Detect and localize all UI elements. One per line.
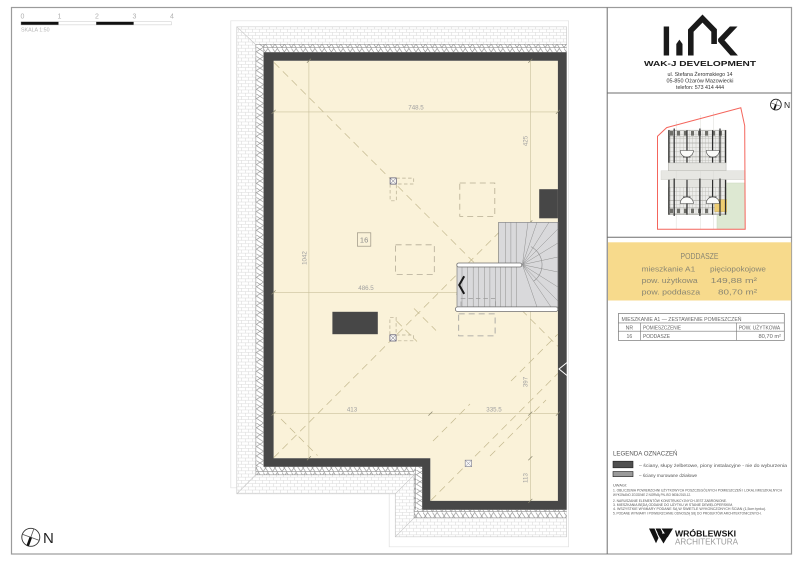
svg-text:WYKONANO ZGODNIE Z NORMĄ PN-IS: WYKONANO ZGODNIE Z NORMĄ PN-ISO 9836:201…	[613, 492, 691, 497]
svg-text:80,70 m²: 80,70 m²	[759, 334, 782, 340]
svg-text:2: 2	[95, 14, 99, 21]
svg-text:NR: NR	[626, 325, 634, 331]
svg-text:– ściany murowane działowe: – ściany murowane działowe	[639, 473, 697, 478]
svg-text:pow. użytkowa: pow. użytkowa	[642, 276, 699, 285]
svg-text:05-850 Ożarów Mazowiecki: 05-850 Ożarów Mazowiecki	[667, 79, 734, 85]
svg-text:N: N	[784, 100, 790, 110]
svg-text:SKALA 1:50: SKALA 1:50	[21, 28, 50, 34]
svg-text:425: 425	[523, 135, 530, 146]
svg-text:1: 1	[58, 14, 62, 21]
svg-text:ul. Stefana Żeromskiego 14: ul. Stefana Żeromskiego 14	[668, 71, 734, 78]
svg-text:397: 397	[523, 376, 530, 387]
svg-text:0: 0	[21, 14, 25, 21]
svg-text:MIESZKANIE A1 — ZESTAWIENIE PO: MIESZKANIE A1 — ZESTAWIENIE POMIESZCZEŃ	[622, 316, 742, 323]
svg-text:16: 16	[360, 236, 368, 245]
svg-text:mieszkanie A1: mieszkanie A1	[642, 265, 696, 274]
svg-text:5. PODANE WYMIARY I POWIERZCHN: 5. PODANE WYMIARY I POWIERZCHNIE ODNOSZĄ…	[613, 510, 762, 515]
svg-text:LEGENDA OZNACZEŃ: LEGENDA OZNACZEŃ	[613, 449, 678, 458]
svg-text:PODDASZE: PODDASZE	[643, 334, 671, 340]
svg-text:– ściany, słupy żelbetowe, pi: – ściany, słupy żelbetowe, piony instala…	[639, 463, 787, 468]
svg-text:4: 4	[170, 14, 174, 21]
svg-text:16: 16	[627, 334, 633, 340]
svg-text:748.5: 748.5	[408, 105, 424, 112]
svg-text:1042: 1042	[302, 251, 309, 265]
svg-text:pięciopokojowe: pięciopokojowe	[710, 265, 766, 274]
svg-text:PODDASZE: PODDASZE	[681, 252, 719, 261]
svg-text:335.5: 335.5	[486, 406, 502, 413]
svg-text:486.5: 486.5	[358, 285, 374, 292]
svg-text:ARCHITEKTURA: ARCHITEKTURA	[675, 538, 739, 547]
svg-text:3: 3	[133, 14, 137, 21]
svg-text:telefon: 573 414 444: telefon: 573 414 444	[676, 85, 725, 91]
svg-text:WAK-J DEVELOPMENT: WAK-J DEVELOPMENT	[644, 59, 757, 68]
svg-text:80,70 m²: 80,70 m²	[718, 287, 758, 296]
svg-text:149,88 m²: 149,88 m²	[711, 276, 758, 285]
svg-text:113: 113	[523, 473, 530, 483]
svg-text:POW. UŻYTKOWA: POW. UŻYTKOWA	[739, 324, 781, 331]
svg-text:N: N	[43, 530, 54, 547]
svg-text:413: 413	[347, 406, 358, 413]
svg-text:pow. poddasza: pow. poddasza	[642, 287, 701, 296]
svg-text:POMIESZCZENIE: POMIESZCZENIE	[643, 325, 681, 331]
